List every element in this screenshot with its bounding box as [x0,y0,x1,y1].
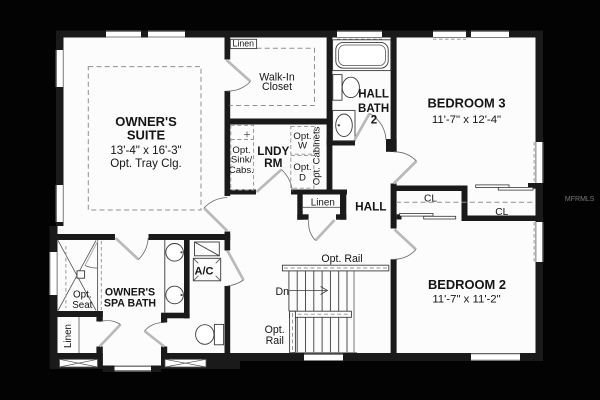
svg-text:RM: RM [264,156,283,170]
svg-text:CL: CL [424,194,437,205]
svg-text:Opt. Tray Clg.: Opt. Tray Clg. [110,157,182,170]
svg-text:Opt. Rail: Opt. Rail [321,253,362,265]
svg-text:Cabs.: Cabs. [229,165,254,176]
svg-text:Opt.: Opt. [293,162,311,173]
svg-text:BEDROOM 2: BEDROOM 2 [428,277,506,292]
svg-text:Seat: Seat [72,300,92,311]
svg-text:D: D [299,173,306,184]
svg-text:Linen: Linen [233,39,255,49]
svg-text:11'-7" x 11'-2": 11'-7" x 11'-2" [432,293,500,305]
svg-text:Opt.: Opt. [265,324,285,336]
svg-text:BEDROOM 3: BEDROOM 3 [427,96,505,111]
svg-text:Dn: Dn [276,286,290,298]
svg-text:Linen: Linen [63,324,74,348]
svg-text:SPA BATH: SPA BATH [104,298,156,310]
svg-text:HALL: HALL [355,199,386,213]
svg-text:W: W [298,141,308,152]
svg-text:13'-4" x 16'-3": 13'-4" x 16'-3" [110,144,181,157]
svg-text:HALL: HALL [358,89,389,101]
svg-text:A/C: A/C [195,266,214,278]
svg-text:Rail: Rail [266,335,284,347]
svg-text:Opt.: Opt. [73,289,92,300]
svg-text:CL: CL [495,207,508,218]
svg-text:Linen: Linen [311,197,335,208]
svg-text:Sink/: Sink/ [231,154,253,165]
svg-text:11'-7" x 12'-4": 11'-7" x 12'-4" [432,114,501,126]
svg-text:SUITE: SUITE [127,128,166,143]
svg-text:MFRMLS: MFRMLS [565,196,595,203]
svg-text:2: 2 [371,115,377,127]
svg-text:Closet: Closet [262,81,292,93]
svg-text:BATH: BATH [358,103,389,115]
svg-text:Opt. Cabinets: Opt. Cabinets [311,126,322,185]
